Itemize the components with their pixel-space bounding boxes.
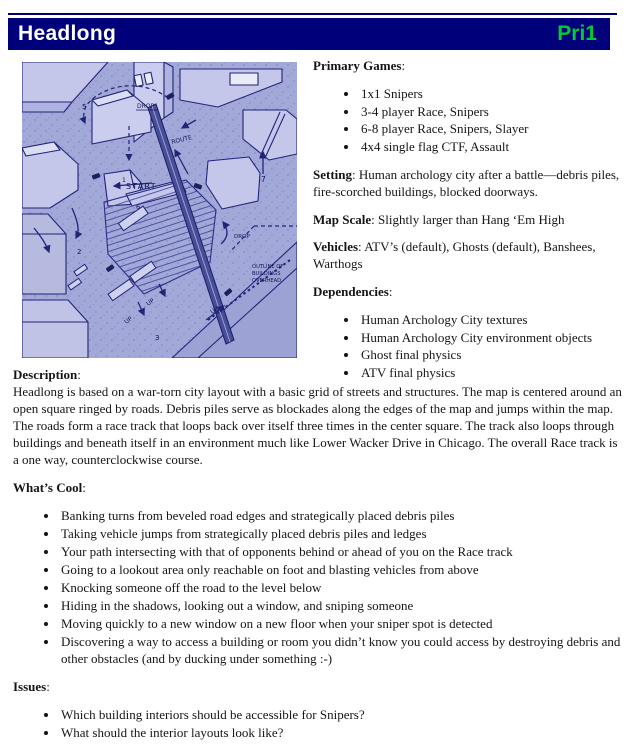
map-label-drop-right: DROP	[234, 234, 250, 240]
list-item: Hiding in the shadows, looking out a win…	[59, 597, 622, 614]
map-label-3: 3	[155, 334, 159, 342]
map-label-drop-top: DROP	[137, 103, 155, 110]
map-sketch: START ROUTE DROP DROP UP UP UP OUTLINE O…	[22, 62, 297, 358]
list-item: 3-4 player Race, Snipers	[359, 104, 625, 121]
list-item: Ghost final physics	[359, 347, 625, 364]
list-item: Human Archology City textures	[359, 312, 625, 329]
priority-badge: Pri1	[557, 22, 597, 46]
whats-cool-heading: What’s Cool:	[13, 479, 622, 496]
map-figure: START ROUTE DROP DROP UP UP UP OUTLINE O…	[22, 62, 297, 358]
map-label-5: 5	[82, 103, 86, 111]
list-item: Banking turns from beveled road edges an…	[59, 507, 622, 524]
description-heading: Description:	[13, 366, 622, 383]
list-item: 1x1 Snipers	[359, 86, 625, 103]
primary-games-list: 1x1 Snipers 3-4 player Race, Snipers 6-8…	[313, 86, 625, 156]
info-column: Primary Games: 1x1 Snipers 3-4 player Ra…	[313, 58, 625, 393]
setting-paragraph: Setting: Human archology city after a ba…	[313, 167, 625, 201]
whats-cool-list: Banking turns from beveled road edges an…	[13, 507, 622, 667]
description-text: Headlong is based on a war-torn city lay…	[13, 383, 622, 468]
primary-games-heading: Primary Games:	[313, 58, 625, 75]
list-item: Moving quickly to a new window on a new …	[59, 615, 622, 632]
map-label-overhead-1: OUTLINE OF	[252, 264, 283, 270]
map-label-overhead-2: BUILDINGS	[252, 271, 281, 277]
list-item: Discovering a way to access a building o…	[59, 633, 622, 667]
map-label-2: 2	[77, 248, 81, 256]
list-item: Which building interiors should be acces…	[59, 706, 622, 723]
list-item: Taking vehicle jumps from strategically …	[59, 525, 622, 542]
title-bar: Headlong Pri1	[8, 18, 610, 50]
top-rule	[8, 13, 617, 15]
list-item: What should the interior layouts look li…	[59, 724, 622, 741]
list-item: 4x4 single flag CTF, Assault	[359, 139, 625, 156]
bottom-section: Description: Headlong is based on a war-…	[13, 366, 622, 752]
list-item: Going to a lookout area only reachable o…	[59, 561, 622, 578]
issues-heading: Issues:	[13, 678, 622, 695]
map-label-overhead-3: OVERHEAD	[252, 278, 281, 284]
map-label-1: 1	[122, 177, 126, 184]
map-label-6: 6	[136, 203, 140, 211]
list-item: 6-8 player Race, Snipers, Slayer	[359, 121, 625, 138]
map-scale-paragraph: Map Scale: Slightly larger than Hang ‘Em…	[313, 212, 625, 229]
map-label-7: 7	[261, 175, 266, 184]
page-title: Headlong	[18, 22, 116, 46]
list-item: Human Archology City environment objects	[359, 330, 625, 347]
issues-list: Which building interiors should be acces…	[13, 706, 622, 741]
list-item: Your path intersecting with that of oppo…	[59, 543, 622, 560]
dependencies-heading: Dependencies:	[313, 284, 625, 301]
list-item: Knocking someone off the road to the lev…	[59, 579, 622, 596]
map-label-start: START	[126, 182, 157, 191]
vehicles-paragraph: Vehicles: ATV’s (default), Ghosts (defau…	[313, 239, 625, 273]
